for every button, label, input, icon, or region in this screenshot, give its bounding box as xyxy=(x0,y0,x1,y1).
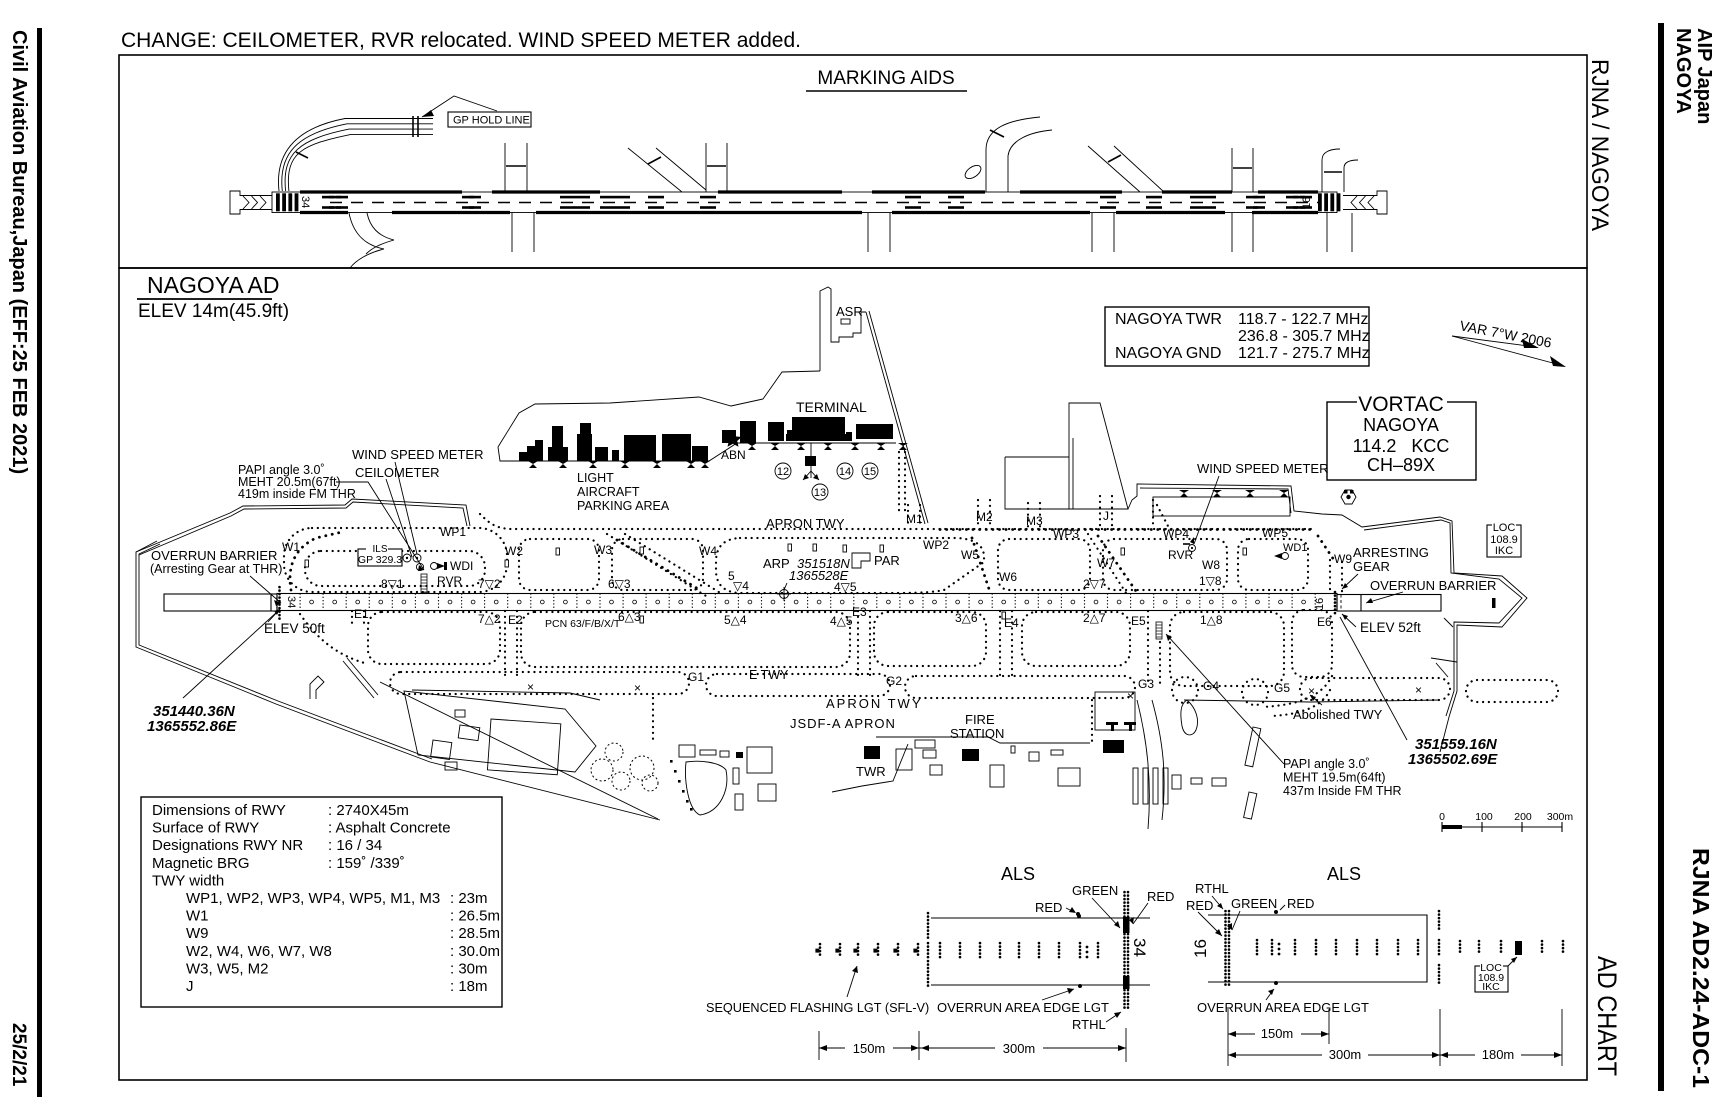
svg-text:16: 16 xyxy=(1191,939,1210,958)
svg-text:TWY width: TWY width xyxy=(152,872,224,889)
svg-text:Civil Aviation Bureau,Japan (E: Civil Aviation Bureau,Japan (EFF:25 FEB … xyxy=(8,30,30,474)
svg-text:E1: E1 xyxy=(354,607,369,621)
svg-text:ARP: ARP xyxy=(763,556,790,571)
svg-text:WP2: WP2 xyxy=(923,538,949,552)
svg-text:: 159˚ /339˚: : 159˚ /339˚ xyxy=(328,855,405,872)
svg-text:GP HOLD LINE: GP HOLD LINE xyxy=(453,115,530,127)
svg-text:ALS: ALS xyxy=(1327,864,1361,884)
svg-text:Magnetic BRG: Magnetic BRG xyxy=(152,855,250,872)
svg-text:7△2: 7△2 xyxy=(478,612,501,626)
svg-text:LIGHT: LIGHT xyxy=(577,471,614,485)
svg-text:G3: G3 xyxy=(1138,677,1154,691)
svg-text:J: J xyxy=(186,978,194,995)
svg-text:RTHL: RTHL xyxy=(1072,1017,1106,1032)
svg-text:×: × xyxy=(1415,683,1422,697)
svg-text:: 28.5m: : 28.5m xyxy=(450,925,500,942)
svg-text:0: 0 xyxy=(1439,811,1445,823)
svg-text:300m: 300m xyxy=(1547,811,1574,823)
svg-text:300m: 300m xyxy=(1003,1041,1036,1056)
svg-text:12: 12 xyxy=(777,466,789,478)
svg-text:437m Inside FM THR: 437m Inside FM THR xyxy=(1283,784,1402,798)
svg-text:IKC: IKC xyxy=(1495,545,1513,557)
svg-text:150m: 150m xyxy=(853,1041,886,1056)
svg-text:JSDF-A APRON: JSDF-A APRON xyxy=(790,716,896,731)
svg-text:OVERRUN AREA EDGE LGT: OVERRUN AREA EDGE LGT xyxy=(937,1000,1109,1015)
svg-text:100: 100 xyxy=(1475,811,1493,823)
svg-text:RED: RED xyxy=(1287,896,1314,911)
svg-text:121.7 - 275.7 MHz: 121.7 - 275.7 MHz xyxy=(1238,345,1370,362)
svg-text:34: 34 xyxy=(285,596,297,608)
svg-text:×: × xyxy=(1308,684,1315,698)
svg-text:114.2 KCC: 114.2 KCC xyxy=(1353,436,1450,456)
svg-text:200: 200 xyxy=(1514,811,1532,823)
svg-text:RED: RED xyxy=(1186,898,1213,913)
svg-text:G2: G2 xyxy=(886,674,902,688)
svg-text:8▽1: 8▽1 xyxy=(381,577,404,591)
svg-text:APRON TWY: APRON TWY xyxy=(766,516,845,531)
svg-text:2△7: 2△7 xyxy=(1083,611,1106,625)
svg-text:PAR: PAR xyxy=(874,553,900,568)
svg-text:W3, W5, M2: W3, W5, M2 xyxy=(186,960,269,977)
svg-text:ELEV 50ft: ELEV 50ft xyxy=(264,621,325,636)
svg-text:WP5: WP5 xyxy=(1262,526,1288,540)
svg-text:W9: W9 xyxy=(186,925,209,942)
svg-text:CHANGE: CEILOMETER, RVR reloca: CHANGE: CEILOMETER, RVR relocated. WIND … xyxy=(121,29,801,52)
svg-text:G5: G5 xyxy=(1274,681,1290,695)
svg-text:WIND SPEED METER: WIND SPEED METER xyxy=(1197,461,1328,476)
svg-text:GREEN: GREEN xyxy=(1231,896,1277,911)
svg-text:G4: G4 xyxy=(1203,679,1219,693)
svg-text:ARRESTING: ARRESTING xyxy=(1353,545,1429,560)
svg-text:W8: W8 xyxy=(1202,558,1220,572)
svg-text:×: × xyxy=(1127,689,1134,703)
svg-text:J: J xyxy=(1103,509,1109,523)
svg-text:OVERRUN AREA EDGE LGT: OVERRUN AREA EDGE LGT xyxy=(1197,1000,1369,1015)
svg-text:E3: E3 xyxy=(852,605,867,619)
svg-text:MEHT 19.5m(64ft): MEHT 19.5m(64ft) xyxy=(1283,771,1386,785)
svg-text:NAGOYA AD: NAGOYA AD xyxy=(147,272,280,298)
svg-text:300m: 300m xyxy=(1329,1047,1362,1062)
svg-text:ELEV 52ft: ELEV 52ft xyxy=(1360,620,1421,635)
svg-text:NAGOYA: NAGOYA xyxy=(1672,28,1694,114)
svg-text:RVR: RVR xyxy=(437,574,462,588)
svg-text:AIRCRAFT: AIRCRAFT xyxy=(577,485,640,499)
svg-text:: Asphalt Concrete: : Asphalt Concrete xyxy=(328,820,451,837)
svg-text:ABN: ABN xyxy=(721,448,746,462)
svg-text:1365528E: 1365528E xyxy=(789,568,849,583)
svg-text:WDI: WDI xyxy=(450,559,473,573)
svg-text:2▽7: 2▽7 xyxy=(1083,577,1106,591)
svg-text:4△5: 4△5 xyxy=(830,614,853,628)
svg-text:NAGOYA TWR: NAGOYA TWR xyxy=(1115,311,1222,328)
svg-text:: 16 / 34: : 16 / 34 xyxy=(328,837,382,854)
svg-text:WIND SPEED METER: WIND SPEED METER xyxy=(352,447,483,462)
svg-text:LOC: LOC xyxy=(1493,522,1516,534)
svg-text:W1: W1 xyxy=(186,908,209,925)
svg-text:AD CHART: AD CHART xyxy=(1592,956,1622,1076)
svg-text:NAGOYA GND: NAGOYA GND xyxy=(1115,345,1221,362)
svg-text:M1: M1 xyxy=(906,512,923,526)
svg-text:: 30m: : 30m xyxy=(450,960,488,977)
svg-text:ALS: ALS xyxy=(1001,864,1035,884)
svg-text:Designations RWY NR: Designations RWY NR xyxy=(152,837,303,854)
svg-text:M2: M2 xyxy=(976,510,993,524)
svg-text:ASR: ASR xyxy=(836,304,863,319)
svg-text:TWR: TWR xyxy=(856,764,886,779)
svg-text:WP3: WP3 xyxy=(1053,527,1079,541)
svg-text:PCN 63/F/B/X/T: PCN 63/F/B/X/T xyxy=(545,618,621,630)
svg-text:E4: E4 xyxy=(1004,616,1019,630)
svg-text:M3: M3 xyxy=(1026,514,1043,528)
svg-text:E6: E6 xyxy=(1317,615,1332,629)
svg-text:TERMINAL: TERMINAL xyxy=(796,399,867,415)
svg-text:OVERRUN BARRIER: OVERRUN BARRIER xyxy=(1370,578,1496,593)
svg-text:RED: RED xyxy=(1147,889,1174,904)
svg-text:G1: G1 xyxy=(688,670,704,684)
svg-text:IKC: IKC xyxy=(1482,981,1500,993)
svg-text:1365502.69E: 1365502.69E xyxy=(1408,751,1498,768)
svg-text:FIRE: FIRE xyxy=(965,712,995,727)
svg-text:MARKING AIDS: MARKING AIDS xyxy=(817,68,954,89)
svg-text:W5: W5 xyxy=(961,548,979,562)
svg-text:RJNA AD2.24-ADC-1: RJNA AD2.24-ADC-1 xyxy=(1688,848,1714,1088)
svg-text:W1: W1 xyxy=(282,540,300,554)
svg-text:AIP Japan: AIP Japan xyxy=(1693,28,1715,124)
svg-text:: 23m: : 23m xyxy=(450,890,488,907)
svg-text:1365552.86E: 1365552.86E xyxy=(147,718,237,735)
svg-text:: 18m: : 18m xyxy=(450,978,488,995)
svg-text:WP4: WP4 xyxy=(1163,527,1189,541)
svg-text:118.7 - 122.7 MHz: 118.7 - 122.7 MHz xyxy=(1238,311,1368,328)
svg-text:W7: W7 xyxy=(1097,556,1115,570)
svg-text:25/2/21: 25/2/21 xyxy=(8,1023,29,1087)
svg-text:180m: 180m xyxy=(1482,1047,1515,1062)
svg-text:GEAR: GEAR xyxy=(1353,559,1390,574)
svg-text:14: 14 xyxy=(839,466,851,478)
svg-text:RJNA / NAGOYA: RJNA / NAGOYA xyxy=(1586,59,1613,231)
svg-text:GREEN: GREEN xyxy=(1072,883,1118,898)
svg-text:: 26.5m: : 26.5m xyxy=(450,908,500,925)
svg-text:1▽8: 1▽8 xyxy=(1199,574,1222,588)
svg-text:1△8: 1△8 xyxy=(1200,613,1223,627)
svg-text:RED: RED xyxy=(1035,900,1062,915)
svg-text:W9: W9 xyxy=(1334,552,1352,566)
svg-text:7▽2: 7▽2 xyxy=(478,577,501,591)
svg-text:RVR: RVR xyxy=(1168,548,1193,562)
svg-text:OVERRUN BARRIER: OVERRUN BARRIER xyxy=(151,548,277,563)
svg-text:W3: W3 xyxy=(594,543,612,557)
svg-text:5△4: 5△4 xyxy=(724,613,747,627)
svg-text:150m: 150m xyxy=(1261,1026,1294,1041)
svg-text:▽4: ▽4 xyxy=(733,579,749,593)
svg-text:CH–89X: CH–89X xyxy=(1367,455,1435,475)
svg-text:PARKING AREA: PARKING AREA xyxy=(577,499,670,513)
svg-text:Abolished TWY: Abolished TWY xyxy=(1293,707,1383,722)
svg-text:W2: W2 xyxy=(505,544,523,558)
svg-text:SEQUENCED FLASHING LGT (SFL-V): SEQUENCED FLASHING LGT (SFL-V) xyxy=(706,1001,929,1015)
svg-text:: 30.0m: : 30.0m xyxy=(450,943,500,960)
svg-text:6▽3: 6▽3 xyxy=(608,577,631,591)
svg-text:VORTAC: VORTAC xyxy=(1358,393,1444,416)
svg-text:16: 16 xyxy=(1314,598,1326,610)
svg-text:: 2740X45m: : 2740X45m xyxy=(328,802,409,819)
svg-text:W2, W4, W6, W7, W8: W2, W4, W6, W7, W8 xyxy=(186,943,332,960)
svg-text:×: × xyxy=(634,681,641,695)
svg-text:34: 34 xyxy=(1130,938,1149,957)
svg-text:RTHL: RTHL xyxy=(1195,881,1229,896)
svg-text:WP1, WP2, WP3, WP4, WP5, M1, M: WP1, WP2, WP3, WP4, WP5, M1, M3 xyxy=(186,890,440,907)
svg-text:13: 13 xyxy=(814,487,826,499)
svg-text:APRON TWY: APRON TWY xyxy=(826,696,923,711)
svg-text:3△6: 3△6 xyxy=(955,611,978,625)
svg-text:NAGOYA: NAGOYA xyxy=(1363,415,1439,435)
svg-text:419m inside FM THR: 419m inside FM THR xyxy=(238,487,356,501)
svg-text:34: 34 xyxy=(299,196,311,208)
svg-text:W6: W6 xyxy=(999,570,1017,584)
svg-text:ELEV 14m(45.9ft): ELEV 14m(45.9ft) xyxy=(138,301,289,322)
svg-text:Dimensions of RWY: Dimensions of RWY xyxy=(152,802,286,819)
svg-text:PAPI angle 3.0˚: PAPI angle 3.0˚ xyxy=(1283,757,1370,771)
svg-text:Surface of RWY: Surface of RWY xyxy=(152,820,259,837)
svg-text:GP 329.3: GP 329.3 xyxy=(358,554,402,566)
svg-text:236.8 - 305.7 MHz: 236.8 - 305.7 MHz xyxy=(1238,328,1370,345)
svg-text:WP1: WP1 xyxy=(440,525,466,539)
svg-text:(Arresting Gear at THR): (Arresting Gear at THR) xyxy=(150,562,282,576)
svg-text:15: 15 xyxy=(864,466,876,478)
svg-text:WD1: WD1 xyxy=(1283,542,1307,554)
svg-text:E TWY: E TWY xyxy=(749,668,789,682)
svg-text:E2: E2 xyxy=(508,613,523,627)
svg-text:STATION: STATION xyxy=(950,726,1004,741)
svg-text:E5: E5 xyxy=(1131,614,1146,628)
svg-text:W4: W4 xyxy=(699,544,717,558)
svg-text:6△3: 6△3 xyxy=(618,610,641,624)
